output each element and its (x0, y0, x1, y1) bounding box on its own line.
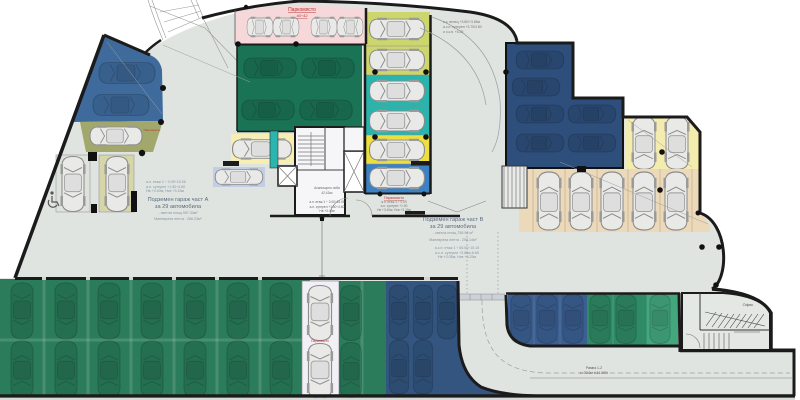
svg-text:Асансьорно лоби: Асансьорно лоби (314, 186, 340, 190)
svg-text:Подземен гараж част В: Подземен гараж част В (423, 217, 484, 223)
svg-text:42.42м²: 42.42м² (321, 191, 332, 195)
svg-text:а.п. етаж 1 ÷ 0.00÷15.06: а.п. етаж 1 ÷ 0.00÷15.06 (309, 200, 344, 204)
svg-text:L=30.0м i=14.00%: L=30.0м i=14.00% (580, 371, 608, 375)
svg-text:Нв +3.40м; Нсв +3.15м: Нв +3.40м; Нсв +3.15м (377, 208, 411, 212)
svg-text:Рампа 1-2: Рампа 1-2 (586, 366, 602, 370)
svg-text:Нв +3.40м: Нв +3.40м (319, 209, 334, 213)
svg-text:Подземен гараж част А: Подземен гараж част А (148, 197, 209, 203)
svg-text:а.с.п. етаж 1 ÷ 65.00÷15.15: а.с.п. етаж 1 ÷ 65.00÷15.15 (435, 246, 480, 250)
svg-text:и о.к.в. +6.25: и о.к.в. +6.25 (443, 30, 463, 34)
svg-text:Нв +3.05м; Нсв +3.25м: Нв +3.05м; Нсв +3.25м (438, 255, 476, 259)
svg-text:Паркомясто: Паркомясто (144, 128, 161, 132)
svg-text:Маневрена лента - 266.23м²: Маневрена лента - 266.23м² (154, 217, 202, 221)
svg-text:за 29 автомобила: за 29 автомобила (430, 224, 477, 230)
svg-text:а.с.п. сутерен +3.75/3.80: а.с.п. сутерен +3.75/3.80 (443, 25, 482, 29)
svg-text:Маневрена лента - 298.14м²: Маневрена лента - 298.14м² (429, 238, 477, 242)
svg-text:а.п. етаж 1 ÷ 0.09÷15.06: а.п. етаж 1 ÷ 0.09÷15.06 (146, 180, 186, 184)
svg-text:40÷42: 40÷42 (296, 13, 308, 18)
svg-text:за 29 автомобила: за 29 автомобила (155, 204, 202, 210)
svg-text:- светла площ 756.96 м²: - светла площ 756.96 м² (433, 231, 474, 235)
svg-text:Паркомясто: Паркомясто (311, 339, 329, 343)
svg-text:Офис: Офис (743, 302, 754, 307)
svg-text:Нв +3.40м; Нсв +3.15м: Нв +3.40м; Нсв +3.15м (146, 189, 184, 193)
svg-text:- светла площ 597.34м²: - светла площ 597.34м² (158, 211, 198, 215)
svg-text:о.к. венец +3.80/+3.85м: о.к. венец +3.80/+3.85м (443, 20, 481, 24)
